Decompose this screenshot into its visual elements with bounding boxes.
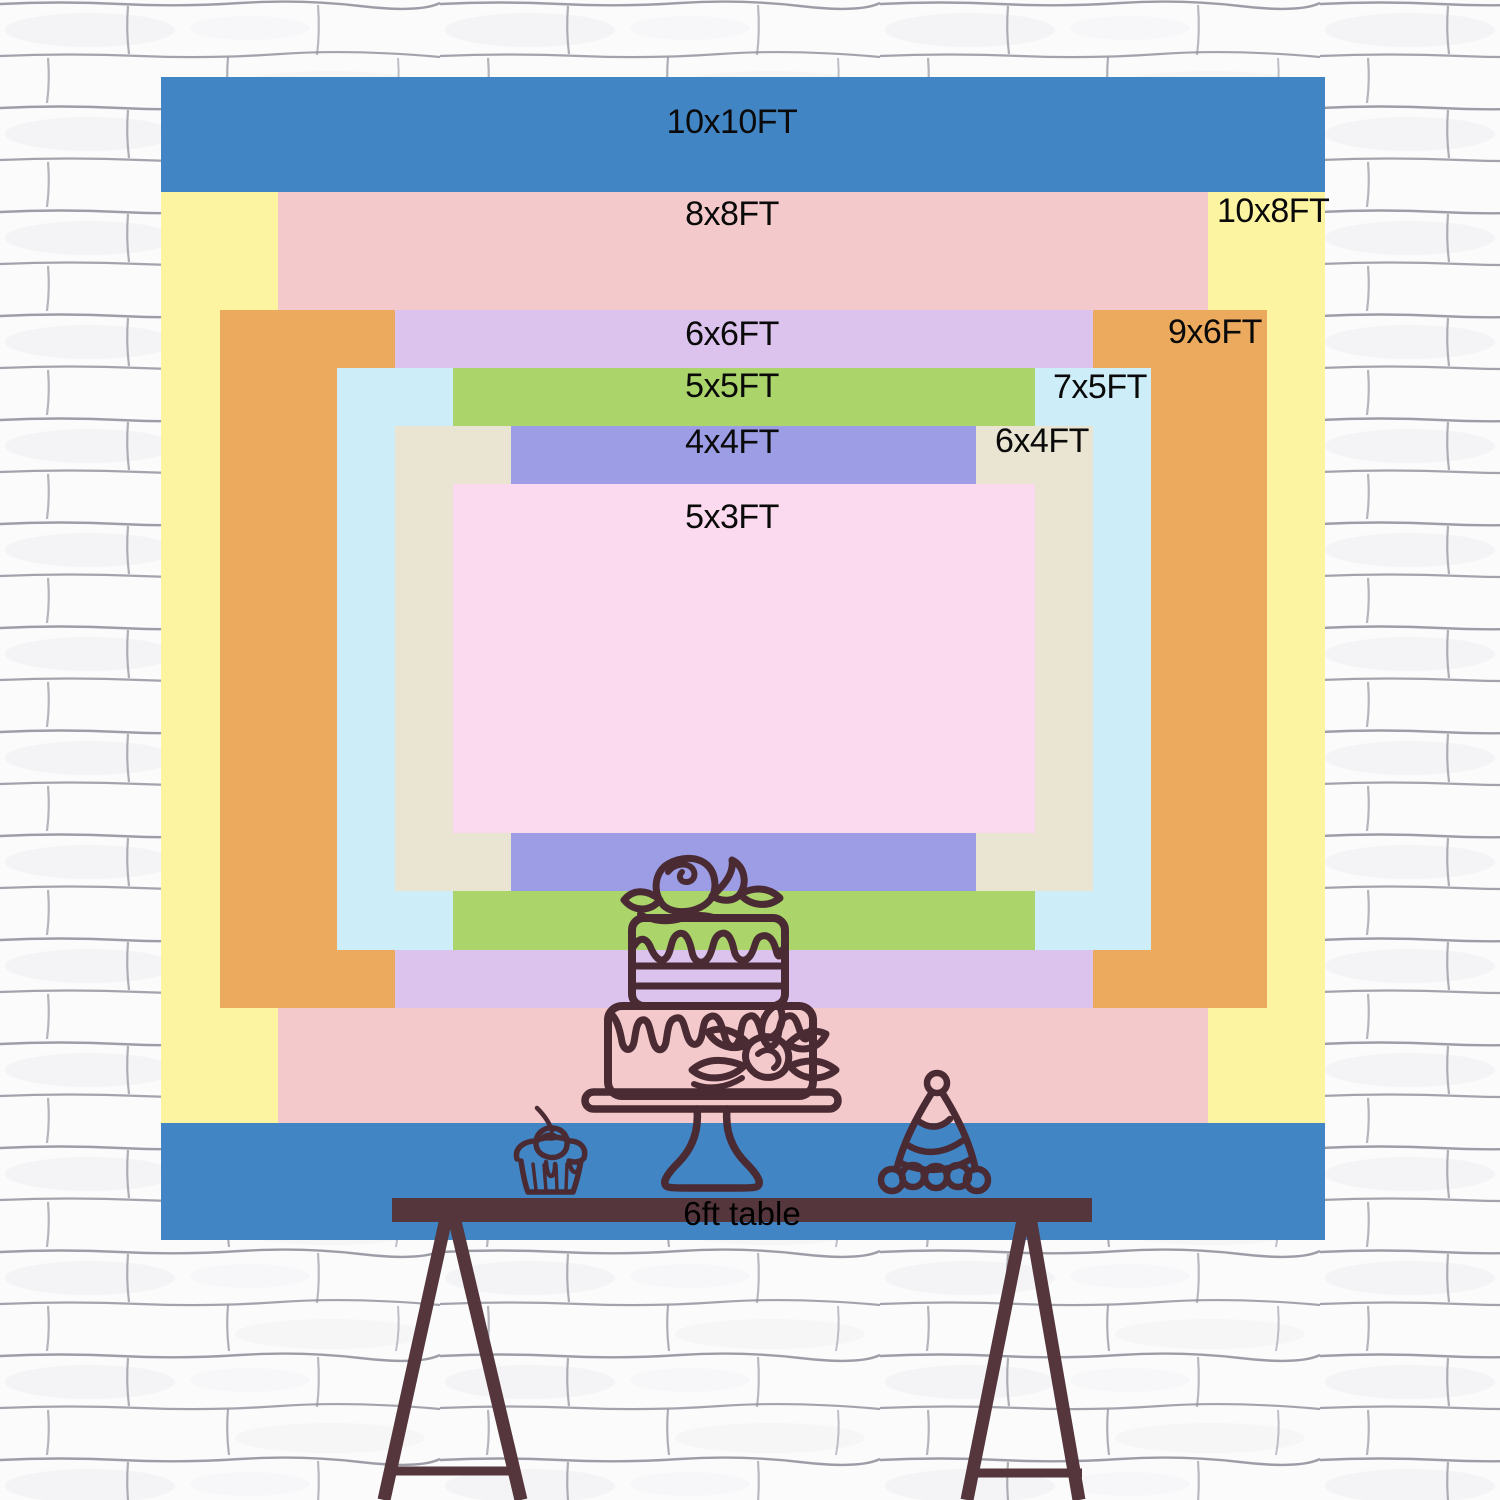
size-label-6x4ft: 6x4FT [995, 424, 1089, 460]
size-band-5x3ft [453, 484, 1035, 833]
size-label-5x3ft: 5x3FT [685, 500, 779, 536]
size-label-6x6ft: 6x6FT [685, 317, 779, 353]
size-bands: 10x10FT10x8FT8x8FT9x6FT6x6FT7x5FT5x5FT6x… [0, 0, 1500, 1500]
size-label-10x10ft: 10x10FT [667, 105, 798, 141]
size-label-10x8ft: 10x8FT [1217, 194, 1329, 230]
size-label-4x4ft: 4x4FT [685, 425, 779, 461]
table-size-label: 6ft table [392, 1195, 1092, 1233]
backdrop-size-chart-poster: 10x10FT10x8FT8x8FT9x6FT6x6FT7x5FT5x5FT6x… [0, 0, 1500, 1500]
size-label-9x6ft: 9x6FT [1168, 315, 1262, 351]
size-label-7x5ft: 7x5FT [1053, 370, 1147, 406]
size-label-8x8ft: 8x8FT [685, 197, 779, 233]
size-label-5x5ft: 5x5FT [685, 369, 779, 405]
